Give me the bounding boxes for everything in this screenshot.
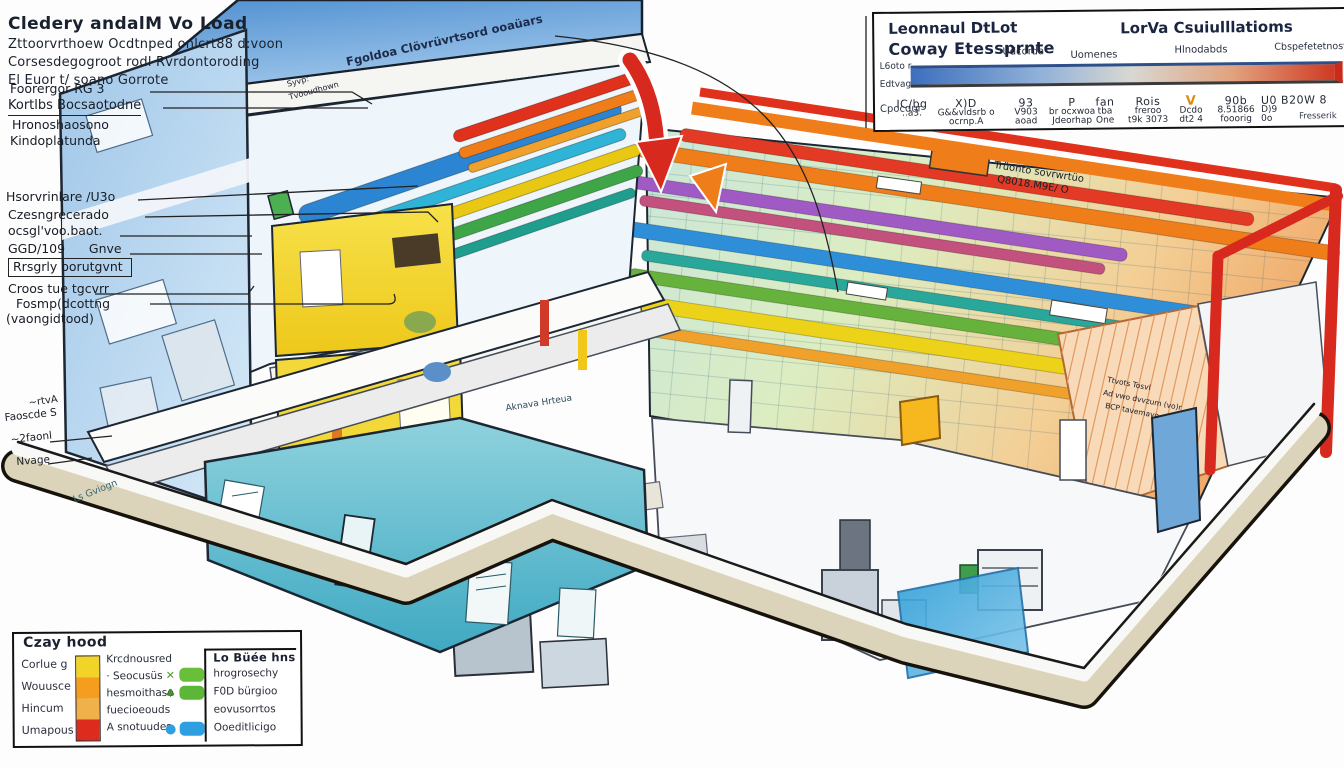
legend-bar-segment-yellow (76, 656, 99, 677)
legend-left-text: · Seocusüs (106, 670, 162, 682)
legend-left-text: fuecioeouds (107, 704, 171, 716)
panel-col-header: Cbspefetetnost (1274, 41, 1344, 53)
building-cutaway-diagram: Cledery andalM Vo Load Zttoorvrthoew Ocd… (0, 0, 1344, 768)
panel-column: X)DG&&vldsrb oocrnp.A (937, 99, 995, 128)
panel-column: 90b8.51866fooorig (1207, 96, 1265, 125)
panel-title-right: LorVa Csuiulllatioms (1120, 18, 1293, 38)
callout-label-boxed: Rrsgrly oorutgvnt (8, 258, 132, 277)
callout-label: Croos tue tgcvrr (8, 282, 109, 296)
x-icon: ✕ (162, 669, 178, 682)
panel-col-header: Uomenes (1070, 49, 1117, 60)
legend-bar-segment-amber (76, 698, 99, 719)
orange-window (900, 396, 940, 445)
diagram-title: Cledery andalM Vo Load (8, 14, 283, 34)
panel-values-row: IC/bg..a3. X)DG&&vldsrb oocrnp.A 93V903a… (875, 95, 1344, 130)
blue-cabinet (1152, 408, 1200, 532)
callout-kindoplatunda: Kindoplatunda (10, 134, 101, 148)
scale-tick-top: L6oto r (880, 62, 912, 72)
legend-swatch-blue (180, 722, 205, 736)
panel-col-header: Hlnodabds (1174, 44, 1227, 56)
callout-label: Hsorvrinlare /U3o (6, 190, 115, 204)
legend-box: Czay hood Corlue g Wouusce Hincum Umapou… (12, 630, 303, 748)
leaf-icon: ♣ (162, 687, 178, 700)
legend-right-label: hrogrosechy (213, 667, 278, 679)
legend-right-label: eovusorrtos (214, 703, 276, 715)
legend-right-label: Ooeditlicigo (214, 721, 277, 733)
callout-hronoshaosono: Hronoshaosono (12, 118, 109, 132)
legend-left-label: Hincum (21, 702, 63, 715)
legend-left-label: Umapous (22, 724, 74, 737)
legend-swatch-green (179, 668, 204, 682)
gradient-scale-bar (911, 61, 1343, 88)
callout-label: Czesngrecerado (8, 208, 109, 222)
legend-color-bar (75, 655, 101, 741)
callout-label: GGD/109 Gnve (8, 242, 122, 256)
callout-label: (vaongidtood) (6, 312, 94, 326)
callout-label: Fosmp(dcottng (16, 297, 110, 311)
panel-col-header: Udcorda (1002, 46, 1044, 57)
legend-bar-segment-red (77, 719, 100, 740)
legend-right-label: F0D bürgioo (213, 685, 277, 697)
legend-title: Czay hood (23, 634, 107, 651)
legend-right-title: Lo Büée hns (213, 650, 295, 665)
legend-left-text: Krcdnousred (106, 653, 172, 665)
legend-left-label: Wouusce (21, 680, 71, 693)
legend-swatch-green (179, 686, 204, 700)
legend-bar-segment-orange (76, 677, 99, 698)
panel-title-line1: Leonnaul DtLot (888, 18, 1017, 37)
callout-foorergor: Foorergor RG 3 (10, 82, 105, 96)
drop-icon: ● (163, 722, 179, 737)
header-line: Corsesdegogroot rodl Rvrdontoroding (8, 55, 283, 70)
header-text-block: Cledery andalM Vo Load Zttoorvrthoew Ocd… (8, 14, 283, 88)
legend-left-label: Corlue g (21, 658, 67, 671)
callout-kortlbs: Kortlbs Bocsaotodne (8, 99, 141, 116)
corner-label: Nvage (16, 454, 50, 468)
panel-footnote: Fresserik (1299, 111, 1337, 121)
thermal-data-panel: Leonnaul DtLot Coway Etessprnte LorVa Cs… (872, 7, 1344, 132)
panel-column: IC/bg..a3. (883, 99, 941, 119)
header-line: Zttoorvrthoew Ocdtnped onlcrt88 d:voon (8, 37, 283, 52)
callout-label: ocsgl'voo.baot. (8, 224, 102, 238)
